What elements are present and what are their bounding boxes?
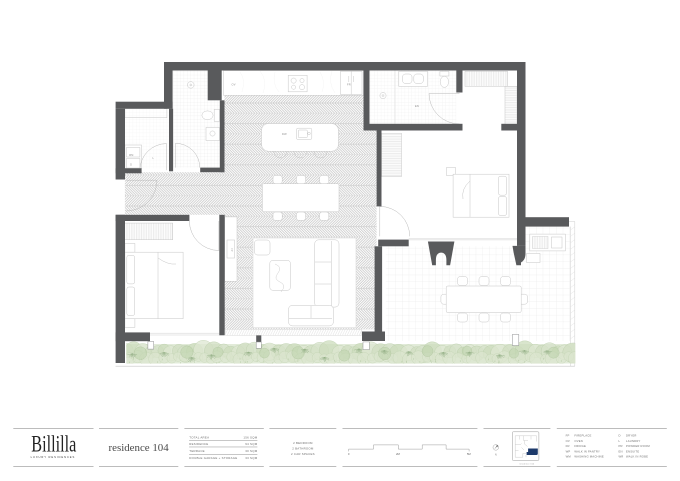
- svg-text:EN: EN: [415, 104, 419, 108]
- svg-text:TERRACE: TERRACE: [189, 449, 205, 453]
- svg-text:LUXURY RESIDENCES: LUXURY RESIDENCES: [31, 455, 76, 459]
- svg-text:TOTAL AREA: TOTAL AREA: [189, 435, 209, 439]
- svg-text:OVEN: OVEN: [574, 439, 583, 443]
- svg-text:WASHING MACHINE: WASHING MACHINE: [574, 455, 603, 459]
- svg-text:WR: WR: [619, 455, 624, 459]
- svg-text:Billilla: Billilla: [31, 432, 76, 457]
- svg-text:FR: FR: [566, 444, 570, 448]
- svg-text:FR: FR: [347, 82, 351, 86]
- svg-text:ENSUITE: ENSUITE: [626, 450, 639, 454]
- svg-text:EN: EN: [619, 450, 623, 454]
- svg-text:2 CAR SPACES: 2 CAR SPACES: [291, 452, 315, 456]
- svg-text:DOUBLE GARAGE + STORAGE: DOUBLE GARAGE + STORAGE: [189, 456, 237, 460]
- svg-text:DRYER: DRYER: [626, 434, 637, 438]
- svg-text:L: L: [619, 439, 621, 443]
- svg-text:94 SQM: 94 SQM: [245, 442, 257, 446]
- svg-text:FRIDGE: FRIDGE: [574, 444, 586, 448]
- svg-text:POWDER ROOM: POWDER ROOM: [626, 444, 650, 448]
- svg-text:FP: FP: [566, 434, 570, 438]
- svg-text:WP: WP: [566, 450, 571, 454]
- svg-text:D: D: [619, 434, 621, 438]
- svg-text:PR: PR: [619, 444, 623, 448]
- svg-text:2 BEDROOM: 2 BEDROOM: [293, 441, 313, 445]
- svg-text:FP: FP: [230, 248, 232, 252]
- svg-text:WM: WM: [566, 455, 572, 459]
- svg-text:D: D: [130, 164, 132, 166]
- svg-text:DW: DW: [282, 132, 287, 136]
- svg-text:2M: 2M: [396, 452, 401, 456]
- svg-text:2 BATHROOM: 2 BATHROOM: [292, 447, 314, 451]
- svg-text:residence 104: residence 104: [519, 464, 535, 466]
- svg-text:156 SQM: 156 SQM: [243, 435, 257, 439]
- svg-text:RESIDENCE: RESIDENCE: [189, 442, 208, 446]
- svg-text:N: N: [495, 454, 497, 456]
- svg-text:OV: OV: [232, 82, 236, 86]
- svg-text:OV: OV: [566, 439, 570, 443]
- svg-text:0: 0: [348, 452, 350, 456]
- svg-text:WM: WM: [129, 155, 133, 157]
- svg-text:WALK IN PANTRY: WALK IN PANTRY: [574, 450, 600, 454]
- svg-text:LAUNDRY: LAUNDRY: [626, 439, 641, 443]
- svg-text:30 SQM: 30 SQM: [245, 449, 257, 453]
- svg-text:FIREPLACE: FIREPLACE: [574, 434, 591, 438]
- svg-text:residence 104: residence 104: [109, 442, 170, 454]
- svg-text:WALK IN ROBE: WALK IN ROBE: [626, 455, 648, 459]
- svg-text:5M: 5M: [467, 452, 472, 456]
- svg-text:33 SQM: 33 SQM: [245, 456, 257, 460]
